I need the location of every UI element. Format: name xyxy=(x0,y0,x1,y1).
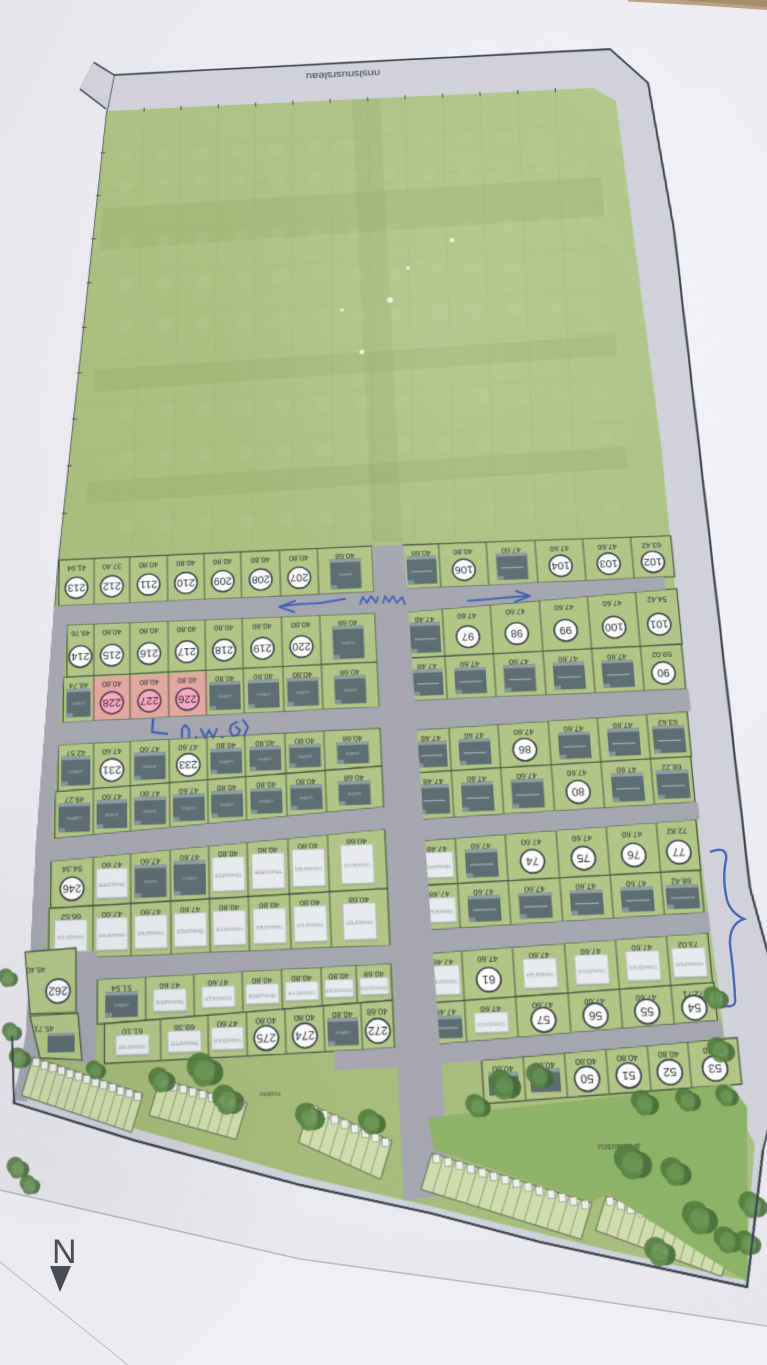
svg-text:N: N xyxy=(52,1233,77,1271)
